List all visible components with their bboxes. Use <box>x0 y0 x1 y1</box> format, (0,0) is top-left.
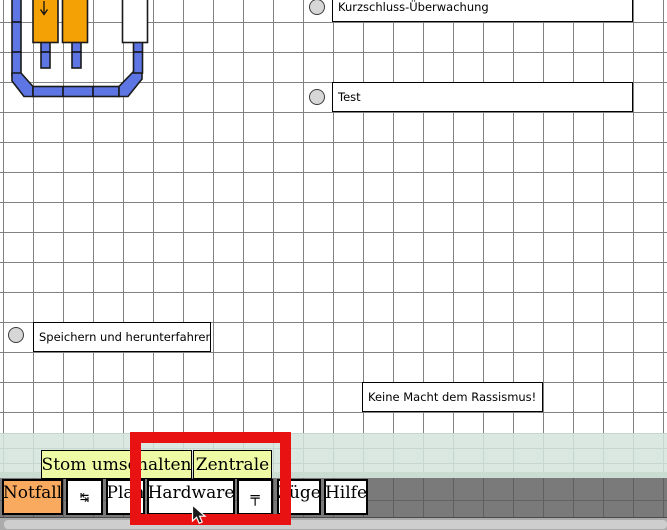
track-segment <box>33 87 119 97</box>
hilfe-button[interactable]: Hilfe <box>324 479 368 515</box>
block-free[interactable] <box>123 0 148 43</box>
option-label-kurzschluss[interactable]: Kurzschluss-Überwachung <box>332 0 633 22</box>
notfall-button[interactable]: Notfall <box>2 479 63 515</box>
track-corner <box>12 73 33 97</box>
block-occupied-1[interactable] <box>33 0 58 43</box>
banner-label: Keine Macht dem Rassismus! <box>362 382 543 412</box>
track-stub <box>41 42 50 68</box>
track-diagram <box>0 0 170 110</box>
track-segment <box>134 42 143 73</box>
horizontal-scrollbar[interactable] <box>0 517 667 530</box>
switch-direction-icon[interactable]: ↹ <box>66 479 103 515</box>
app-window: Kurzschluss-Überwachung Test Speichern u… <box>0 0 667 530</box>
scrollbar-thumb[interactable] <box>4 520 667 529</box>
track-segment <box>12 0 21 76</box>
radio-speichern[interactable] <box>8 327 24 343</box>
radio-test[interactable] <box>309 89 325 105</box>
annotation-highlight-box <box>130 432 291 525</box>
mouse-cursor-icon <box>191 504 207 526</box>
option-label-test[interactable]: Test <box>332 82 633 112</box>
track-corner <box>119 72 142 97</box>
block-occupied-2[interactable] <box>63 0 88 43</box>
track-stub <box>72 42 81 68</box>
option-label-speichern[interactable]: Speichern und herunterfahren <box>33 322 211 352</box>
